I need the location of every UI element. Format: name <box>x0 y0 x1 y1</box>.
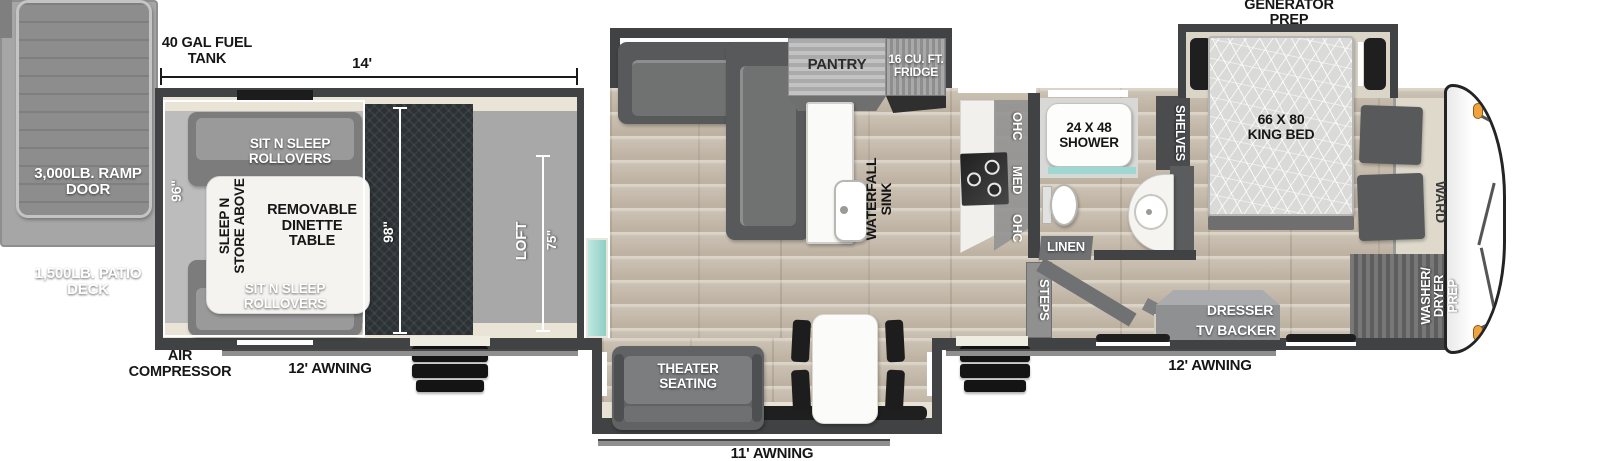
king-bed-label: 66 X 80 KING BED <box>1241 112 1321 142</box>
awning-left-bar <box>222 349 578 356</box>
awning-right-bar <box>946 349 1276 356</box>
air-compressor-label: AIR COMPRESSOR <box>116 349 244 380</box>
ramp-dim-tick-top <box>393 107 407 109</box>
length-dim-line <box>160 76 578 78</box>
fuel-tank-label: 40 GAL FUEL TANK <box>147 36 267 67</box>
wardrobe-lower <box>1357 173 1425 241</box>
length-dim-tick-left <box>160 68 162 85</box>
theater-armrest-right <box>752 354 762 422</box>
toilet-bowl <box>1050 184 1078 226</box>
garage-width-dim: 96" <box>155 169 199 213</box>
shower-label: 24 X 48 SHOWER <box>1049 121 1129 150</box>
theater-seating-label: THEATER SEATING <box>643 362 733 391</box>
linen-label: LINEN <box>1040 240 1092 254</box>
med-label: MED <box>998 156 1024 204</box>
generator-prep-label: GENERATOR PREP <box>1229 0 1349 28</box>
bottom-sill-2 <box>1286 342 1356 346</box>
chair-1 <box>791 320 811 363</box>
garage-bottom-window <box>237 340 313 345</box>
ramp-dim-label: 98" <box>367 210 411 254</box>
tv-backer-label: TV BACKER <box>1188 323 1284 338</box>
ramp-hinge-bottom <box>0 0 12 38</box>
garage-entry-step-3 <box>416 380 484 392</box>
awning-right-label: 12' AWNING <box>1130 358 1290 374</box>
fridge-label: 16 CU. FT. FRIDGE <box>884 53 948 79</box>
length-dim-label: 14' <box>340 56 384 72</box>
steps-label: STEPS <box>1029 266 1051 334</box>
pantry-label: PANTRY <box>792 57 882 73</box>
ward-label: WARD <box>1424 168 1448 236</box>
theater-armrest-left <box>614 354 624 422</box>
sofa-slide-top-wall <box>610 28 952 38</box>
bath-sink-drain <box>1146 209 1152 215</box>
rollover-bottom-label: SIT N SLEEP ROLLOVERS <box>210 282 360 311</box>
kitchen-window-sill <box>958 85 1036 93</box>
washer-dryer-label: WASHER/ DRYER PREP <box>1405 262 1475 330</box>
bath-window-sill <box>1048 90 1128 97</box>
loft-dim-label: 75" <box>530 218 574 262</box>
rollover-top-label: SIT N SLEEP ROLLOVERS <box>215 137 365 166</box>
bed-slide-window-right <box>1364 38 1386 90</box>
main-door-opening <box>956 336 1028 346</box>
kitchen-bath-wall <box>1028 93 1040 258</box>
chair-3 <box>885 320 905 363</box>
main-entry-step-2 <box>960 364 1030 378</box>
cap-accent-3 <box>1480 247 1497 316</box>
length-dim-tick-right <box>576 68 578 85</box>
main-entry-step-3 <box>964 380 1026 392</box>
bottom-window-1 <box>1096 334 1170 342</box>
ramp-dim-tick-bottom <box>393 332 407 334</box>
wardrobe-upper <box>1359 105 1423 165</box>
ohc-lower-label: OHC <box>998 204 1024 252</box>
floorplan: 3,000LB. RAMP DOOR 1,500LB. PATIO DECK S… <box>0 0 1600 461</box>
waterfall-sink-label: WATERFALL SINK <box>823 143 935 255</box>
bottom-sill-1 <box>1096 342 1170 346</box>
rear-entry-door <box>586 238 608 338</box>
marker-light-top <box>1473 103 1483 119</box>
burner-2 <box>967 172 981 186</box>
theater-seat-edge <box>624 406 752 422</box>
awning-center-label: 11' AWNING <box>692 446 852 461</box>
dining-table <box>812 314 878 424</box>
shelves-label: SHELVES <box>1160 100 1186 166</box>
patio-deck-label: 1,500LB. PATIO DECK <box>32 266 144 298</box>
chair-2 <box>791 370 811 411</box>
ohc-upper-label: OHC <box>998 102 1024 150</box>
bed-slide-sill-right <box>1358 42 1363 86</box>
shower-glass <box>1048 167 1136 174</box>
ramp-door-label: 3,000LB. RAMP DOOR <box>32 166 144 198</box>
cap-accent-2 <box>1477 183 1495 246</box>
chair-4 <box>885 370 905 411</box>
garage-entry-step-2 <box>412 364 488 378</box>
theater-side-sill-right <box>927 352 932 396</box>
bath-bedroom-wall <box>1094 250 1196 260</box>
bottom-window-2 <box>1286 334 1356 342</box>
garage-door-opening <box>410 336 490 346</box>
awning-left-label: 12' AWNING <box>250 361 410 377</box>
loft-dim-tick-bottom <box>536 330 550 332</box>
dresser-label: DRESSER <box>1200 303 1280 318</box>
bed-foot-platform <box>1208 216 1354 230</box>
loft-dim-tick-top <box>536 155 550 157</box>
garage-top-vent <box>237 90 313 100</box>
theater-side-sill-left <box>602 352 607 396</box>
